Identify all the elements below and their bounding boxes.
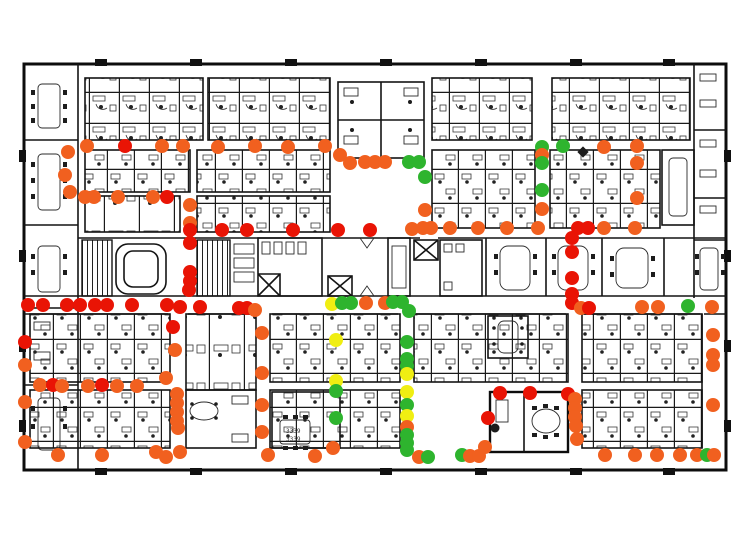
- sensor-dot-orange[interactable]: [281, 140, 295, 154]
- sensor-dot-green[interactable]: [418, 170, 432, 184]
- sensor-dot-red[interactable]: [95, 378, 109, 392]
- sensor-dot-orange[interactable]: [155, 139, 169, 153]
- sensor-dot-orange[interactable]: [630, 139, 644, 153]
- sensor-dot-green[interactable]: [329, 411, 343, 425]
- sensor-dot-orange[interactable]: [255, 366, 269, 380]
- sensor-dot-red[interactable]: [481, 411, 495, 425]
- sensor-dot-orange[interactable]: [535, 202, 549, 216]
- sensor-dot-orange[interactable]: [111, 190, 125, 204]
- sensor-dot-green[interactable]: [400, 335, 414, 349]
- sensor-dot-yellow[interactable]: [329, 333, 343, 347]
- sensor-dot-green[interactable]: [556, 139, 570, 153]
- sensor-dot-orange[interactable]: [569, 419, 583, 433]
- stairwell-2: [197, 240, 230, 296]
- sensor-dot-orange[interactable]: [630, 191, 644, 205]
- sensor-dot-orange[interactable]: [183, 198, 197, 212]
- sensor-dot-orange[interactable]: [255, 326, 269, 340]
- column-dot: [491, 424, 500, 433]
- shaft-x: [258, 274, 280, 296]
- sensor-dot-orange[interactable]: [171, 421, 185, 435]
- sensor-dot-orange[interactable]: [343, 156, 357, 170]
- sensor-dot-red[interactable]: [193, 300, 207, 314]
- sensor-dot-green[interactable]: [344, 296, 358, 310]
- sensor-dot-orange[interactable]: [500, 221, 514, 235]
- sensor-dot-orange[interactable]: [597, 140, 611, 154]
- sensor-dot-orange[interactable]: [635, 300, 649, 314]
- sensor-dot-orange[interactable]: [378, 155, 392, 169]
- sensor-dot-red[interactable]: [160, 190, 174, 204]
- sensor-dot-orange[interactable]: [55, 379, 69, 393]
- right-office-column: [694, 64, 726, 298]
- sensor-dot-orange[interactable]: [87, 190, 101, 204]
- sensor-dot-orange[interactable]: [18, 395, 32, 409]
- sensor-dot-orange[interactable]: [424, 221, 438, 235]
- stairwell: [82, 240, 112, 296]
- sensor-dot-orange[interactable]: [707, 448, 721, 462]
- sensor-dot-orange[interactable]: [628, 448, 642, 462]
- sensor-dot-orange[interactable]: [146, 190, 160, 204]
- sensor-dot-red[interactable]: [183, 223, 197, 237]
- sensor-dot-red[interactable]: [182, 283, 196, 297]
- auditorium: [124, 251, 158, 287]
- sensor-dot-orange[interactable]: [443, 221, 457, 235]
- sensor-dot-red[interactable]: [73, 298, 87, 312]
- sensor-dot-orange[interactable]: [33, 378, 47, 392]
- sensor-dot-green[interactable]: [412, 155, 426, 169]
- sensor-dot-orange[interactable]: [650, 448, 664, 462]
- sensor-dot-orange[interactable]: [628, 221, 642, 235]
- sensor-dot-red[interactable]: [363, 223, 377, 237]
- sensor-dot-orange[interactable]: [176, 139, 190, 153]
- sensor-dot-green[interactable]: [402, 304, 416, 318]
- sensor-dot-orange[interactable]: [531, 221, 545, 235]
- sensor-dot-orange[interactable]: [58, 168, 72, 182]
- sensor-dot-red[interactable]: [166, 320, 180, 334]
- sensor-dot-orange[interactable]: [211, 140, 225, 154]
- center-offices: [338, 82, 424, 158]
- sensor-dot-orange[interactable]: [673, 448, 687, 462]
- room-number: 3339: [286, 436, 301, 443]
- sensor-dot-red[interactable]: [286, 223, 300, 237]
- sensor-dot-orange[interactable]: [472, 449, 486, 463]
- sensor-dot-orange[interactable]: [248, 303, 262, 317]
- sensor-dot-red[interactable]: [60, 298, 74, 312]
- sensor-dot-green[interactable]: [400, 443, 414, 457]
- sensor-dot-orange[interactable]: [597, 221, 611, 235]
- room-number: 3339: [286, 428, 301, 435]
- sensor-dot-red[interactable]: [582, 301, 596, 315]
- sensor-dot-orange[interactable]: [359, 296, 373, 310]
- sensor-dot-orange[interactable]: [18, 358, 32, 372]
- sensor-dot-yellow[interactable]: [400, 367, 414, 381]
- sensor-dot-red[interactable]: [88, 298, 102, 312]
- sensor-dot-orange[interactable]: [308, 449, 322, 463]
- sensor-dot-orange[interactable]: [418, 203, 432, 217]
- sensor-dot-orange[interactable]: [326, 441, 340, 455]
- sensor-dot-orange[interactable]: [63, 185, 77, 199]
- sensor-dot-green[interactable]: [535, 183, 549, 197]
- kitchen-room: [440, 240, 482, 296]
- sensor-dot-orange[interactable]: [706, 358, 720, 372]
- sensor-dot-red[interactable]: [160, 298, 174, 312]
- sensor-dot-orange[interactable]: [159, 450, 173, 464]
- center-conference-bottom: [490, 392, 568, 452]
- sensor-dot-red[interactable]: [565, 245, 579, 259]
- sensor-dot-orange[interactable]: [168, 343, 182, 357]
- sensor-dot-orange[interactable]: [51, 448, 65, 462]
- sensor-dot-orange[interactable]: [598, 448, 612, 462]
- sensor-dot-orange[interactable]: [651, 300, 665, 314]
- sensor-dot-red[interactable]: [493, 386, 507, 400]
- sensor-dot-orange[interactable]: [248, 139, 262, 153]
- sensor-dot-orange[interactable]: [706, 398, 720, 412]
- sensor-dot-red[interactable]: [100, 298, 114, 312]
- sensor-dot-red[interactable]: [565, 271, 579, 285]
- sensor-dot-orange[interactable]: [95, 448, 109, 462]
- sensor-dot-orange[interactable]: [630, 156, 644, 170]
- sensor-dot-orange[interactable]: [61, 145, 75, 159]
- sensor-dot-orange[interactable]: [159, 371, 173, 385]
- sensor-dot-green[interactable]: [421, 450, 435, 464]
- sensor-dot-orange[interactable]: [705, 300, 719, 314]
- sensor-dot-orange[interactable]: [81, 379, 95, 393]
- sensor-dot-orange[interactable]: [570, 432, 584, 446]
- sensor-dot-orange[interactable]: [706, 328, 720, 342]
- sensor-dot-red[interactable]: [565, 231, 579, 245]
- floorplan-stage: 33393339: [0, 0, 748, 545]
- sensor-dot-green[interactable]: [681, 299, 695, 313]
- small-meeting-room: [186, 390, 256, 448]
- sensor-dot-orange[interactable]: [173, 445, 187, 459]
- sensor-dot-orange[interactable]: [318, 139, 332, 153]
- sensor-dot-red[interactable]: [21, 298, 35, 312]
- sensor-dot-red[interactable]: [215, 223, 229, 237]
- restrooms: [258, 238, 322, 296]
- sensor-dot-orange[interactable]: [80, 139, 94, 153]
- sensor-dot-red[interactable]: [523, 386, 537, 400]
- sensor-dot-green[interactable]: [535, 156, 549, 170]
- sensor-dot-red[interactable]: [183, 236, 197, 250]
- sensor-dot-orange[interactable]: [255, 425, 269, 439]
- sensor-dot-red[interactable]: [125, 298, 139, 312]
- sensor-dot-orange[interactable]: [255, 398, 269, 412]
- sensor-dot-yellow[interactable]: [400, 385, 414, 399]
- sensor-dot-red[interactable]: [173, 300, 187, 314]
- floor-plan: 33393339: [0, 0, 748, 545]
- sensor-dot-green[interactable]: [329, 384, 343, 398]
- sensor-dot-orange[interactable]: [471, 221, 485, 235]
- room-labels: 33393339: [286, 428, 301, 443]
- sensor-dot-red[interactable]: [581, 221, 595, 235]
- elevator-core: [328, 238, 438, 296]
- sensor-dot-red[interactable]: [240, 223, 254, 237]
- sensor-dot-orange[interactable]: [18, 435, 32, 449]
- sensor-dot-red[interactable]: [36, 298, 50, 312]
- sensor-dot-orange[interactable]: [261, 448, 275, 462]
- sensor-dot-red[interactable]: [118, 139, 132, 153]
- sensor-dot-orange[interactable]: [130, 379, 144, 393]
- sensor-dot-red[interactable]: [18, 335, 32, 349]
- sensor-dot-red[interactable]: [331, 223, 345, 237]
- sensor-dot-orange[interactable]: [110, 379, 124, 393]
